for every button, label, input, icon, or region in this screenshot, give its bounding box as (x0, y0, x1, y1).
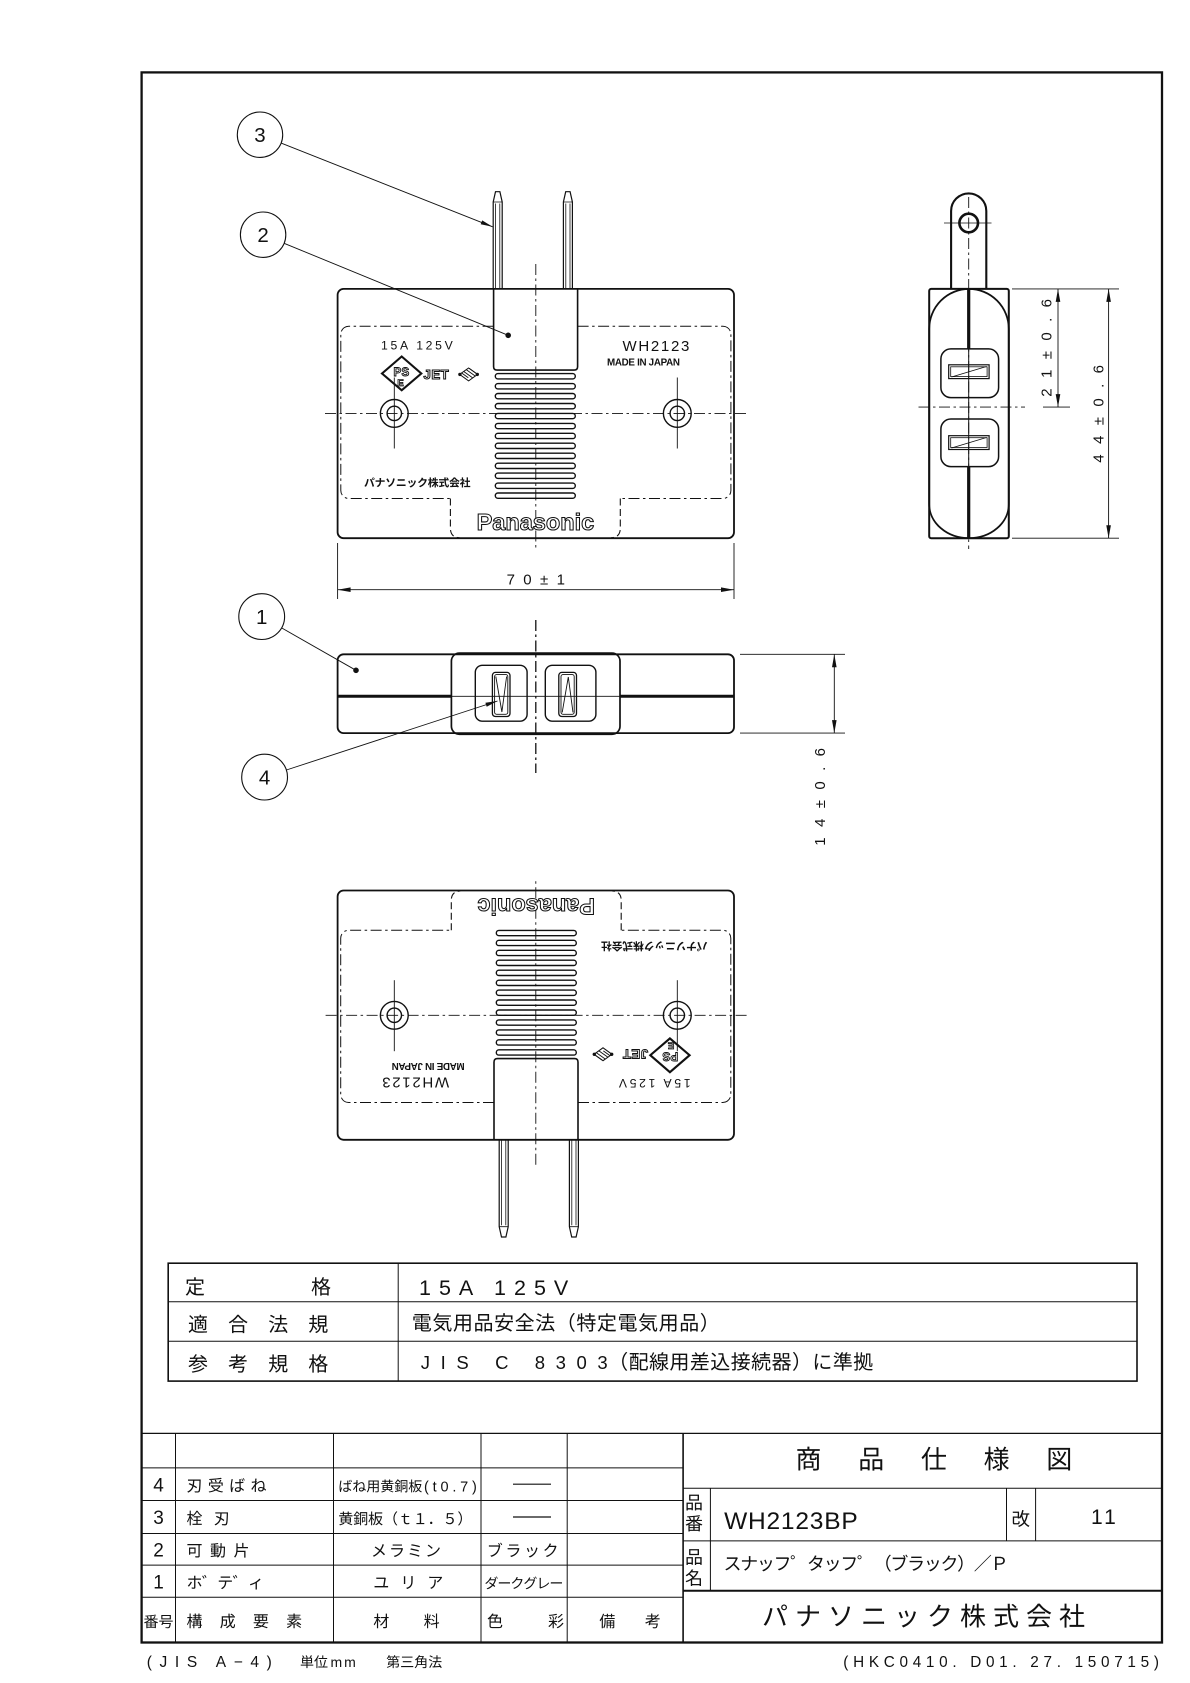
svg-text:Panasonic: Panasonic (477, 893, 595, 919)
svg-text:JET: JET (424, 367, 450, 382)
svg-text:70±1: 70±1 (507, 571, 574, 588)
svg-text:15A 125V: 15A 125V (419, 1276, 576, 1300)
svg-text:WH2123: WH2123 (623, 338, 692, 355)
svg-text:E: E (668, 1040, 674, 1051)
svg-text:WH2123BP: WH2123BP (724, 1508, 858, 1535)
svg-text:3: 3 (153, 1508, 164, 1529)
svg-text:44±0.6: 44±0.6 (1091, 355, 1108, 463)
svg-text:MADE IN JAPAN: MADE IN JAPAN (392, 1060, 465, 1071)
svg-text:Panasonic: Panasonic (477, 509, 595, 535)
svg-text:15A 125V: 15A 125V (381, 339, 455, 353)
svg-text:2: 2 (153, 1540, 164, 1561)
svg-text:1: 1 (256, 606, 267, 629)
svg-text:3: 3 (254, 124, 265, 147)
svg-text:2: 2 (257, 224, 268, 247)
svg-text:1: 1 (153, 1572, 164, 1593)
svg-text:21±0.6: 21±0.6 (1039, 289, 1056, 397)
svg-text:JIS C 8303: JIS C 8303 (421, 1352, 619, 1373)
svg-text:15A 125V: 15A 125V (616, 1076, 690, 1090)
svg-text:MADE IN JAPAN: MADE IN JAPAN (607, 358, 680, 369)
svg-text:4: 4 (259, 766, 270, 789)
svg-text:11: 11 (1091, 1506, 1119, 1529)
svg-text:E: E (397, 378, 403, 389)
svg-text:(HKC0410. D01. 27. 150715): (HKC0410. D01. 27. 150715) (843, 1654, 1163, 1671)
svg-text:mm: mm (331, 1654, 358, 1670)
svg-text:4: 4 (153, 1475, 164, 1496)
svg-text:JET: JET (622, 1047, 648, 1062)
svg-text:(JIS A−4): (JIS A−4) (147, 1654, 280, 1671)
svg-text:14±0.6: 14±0.6 (812, 738, 829, 846)
svg-text:WH2123: WH2123 (381, 1074, 450, 1091)
svg-text:(t0.7): (t0.7) (424, 1479, 481, 1495)
